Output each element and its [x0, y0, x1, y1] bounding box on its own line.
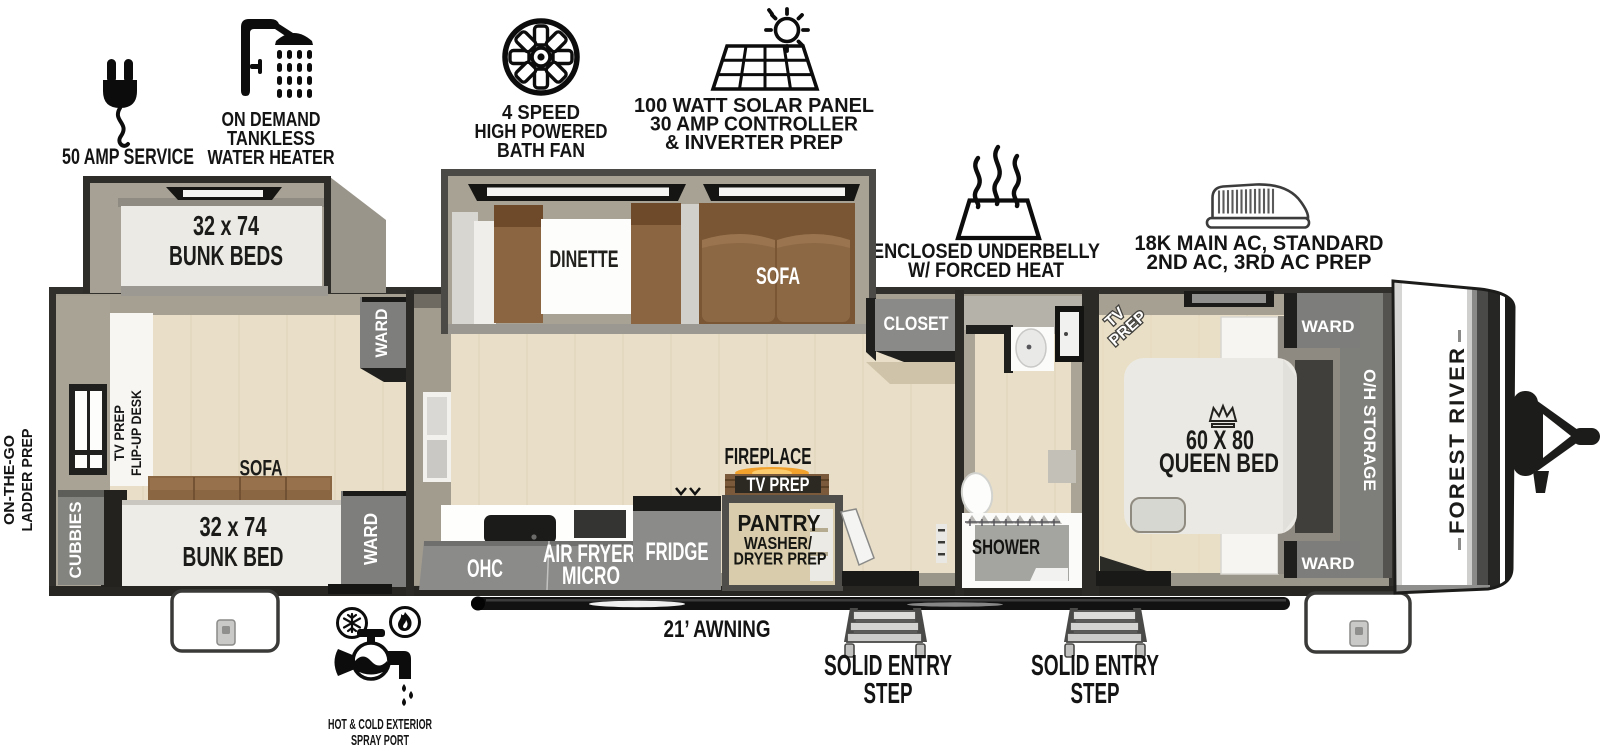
svg-text:MICRO: MICRO	[562, 562, 620, 590]
svg-text:32 x 74: 32 x 74	[193, 210, 259, 241]
svg-text:WARD: WARD	[1302, 317, 1355, 336]
svg-text:FOREST RIVER: FOREST RIVER	[1445, 346, 1469, 534]
svg-text:SHOWER: SHOWER	[972, 536, 1040, 559]
svg-text:TV PREP: TV PREP	[747, 475, 810, 496]
svg-text:32 x 74: 32 x 74	[200, 511, 267, 542]
svg-text:DINETTE: DINETTE	[550, 246, 619, 273]
svg-text:WARD: WARD	[1302, 554, 1355, 573]
svg-text:CLOSET: CLOSET	[884, 314, 949, 335]
svg-text:OHC: OHC	[467, 555, 503, 583]
svg-text:& INVERTER PREP: & INVERTER PREP	[665, 131, 843, 154]
svg-text:FLIP-UP DESK: FLIP-UP DESK	[129, 390, 144, 476]
svg-text:ON-THE-GO: ON-THE-GO	[1, 435, 18, 525]
svg-text:WARD: WARD	[372, 309, 391, 358]
svg-text:TV PREP: TV PREP	[112, 405, 127, 461]
svg-text:LADDER PREP: LADDER PREP	[19, 429, 36, 532]
svg-text:50 AMP SERVICE: 50 AMP SERVICE	[62, 144, 194, 169]
svg-text:SOFA: SOFA	[756, 263, 800, 290]
svg-text:BUNK BED: BUNK BED	[183, 541, 284, 572]
svg-text:QUEEN BED: QUEEN BED	[1159, 448, 1279, 478]
svg-text:21’ AWNING: 21’ AWNING	[664, 616, 771, 643]
svg-text:BATH FAN: BATH FAN	[497, 140, 585, 162]
svg-text:FIREPLACE: FIREPLACE	[725, 443, 812, 469]
svg-text:HOT & COLD EXTERIOR: HOT & COLD EXTERIOR	[328, 716, 432, 733]
svg-text:DRYER PREP: DRYER PREP	[734, 549, 827, 569]
svg-text:CUBBIES: CUBBIES	[67, 502, 85, 579]
svg-text:FRIDGE: FRIDGE	[646, 538, 709, 566]
svg-text:2ND AC, 3RD AC PREP: 2ND AC, 3RD AC PREP	[1147, 251, 1372, 274]
svg-text:STEP: STEP	[1071, 678, 1120, 710]
svg-text:SOFA: SOFA	[240, 456, 283, 481]
svg-text:W/ FORCED HEAT: W/ FORCED HEAT	[908, 259, 1064, 282]
svg-text:SPRAY PORT: SPRAY PORT	[351, 732, 409, 749]
svg-text:O/H STORAGE: O/H STORAGE	[1360, 369, 1379, 491]
svg-text:WARD: WARD	[361, 513, 381, 565]
svg-text:STEP: STEP	[864, 678, 913, 710]
svg-text:BUNK BEDS: BUNK BEDS	[169, 240, 283, 271]
svg-text:WATER HEATER: WATER HEATER	[208, 147, 335, 169]
